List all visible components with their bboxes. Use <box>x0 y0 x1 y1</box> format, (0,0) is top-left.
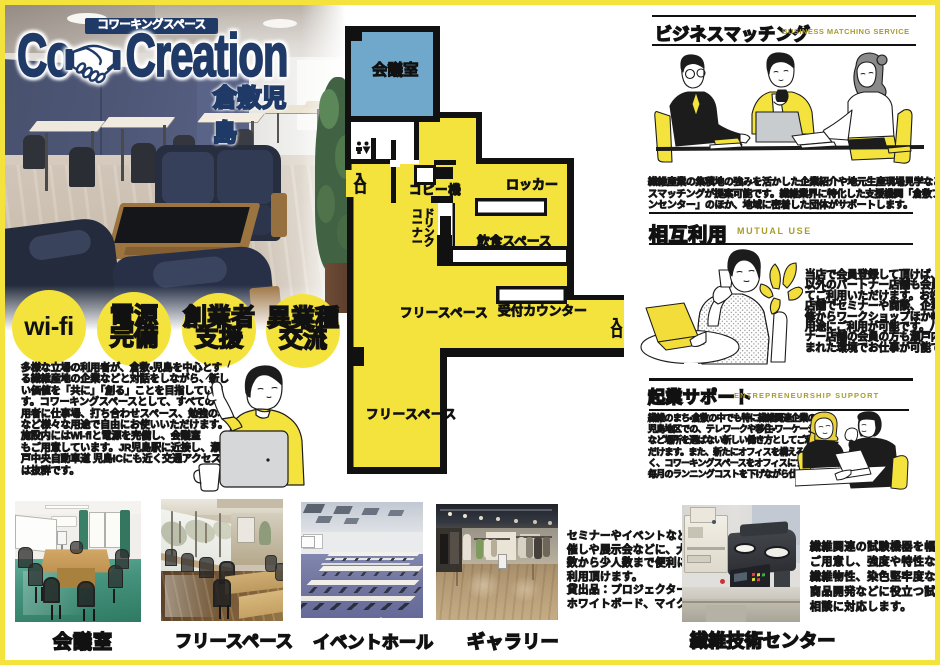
svg-text:コピー機: コピー機 <box>409 182 461 197</box>
svg-text:飲食スペース: 飲食スペース <box>476 234 552 249</box>
svg-text:ロッカー: ロッカー <box>506 177 558 192</box>
svg-text:ー: ー <box>412 237 423 249</box>
svg-text:フリースペース: フリースペース <box>366 408 457 422</box>
svg-text:ク: ク <box>424 237 435 249</box>
svg-text:口: 口 <box>355 182 367 196</box>
svg-text:口: 口 <box>612 327 623 340</box>
svg-text:フリースペース: フリースペース <box>400 306 488 320</box>
svg-text:受付カウンター: 受付カウンター <box>498 303 587 318</box>
svg-text:会議室: 会議室 <box>372 60 419 79</box>
